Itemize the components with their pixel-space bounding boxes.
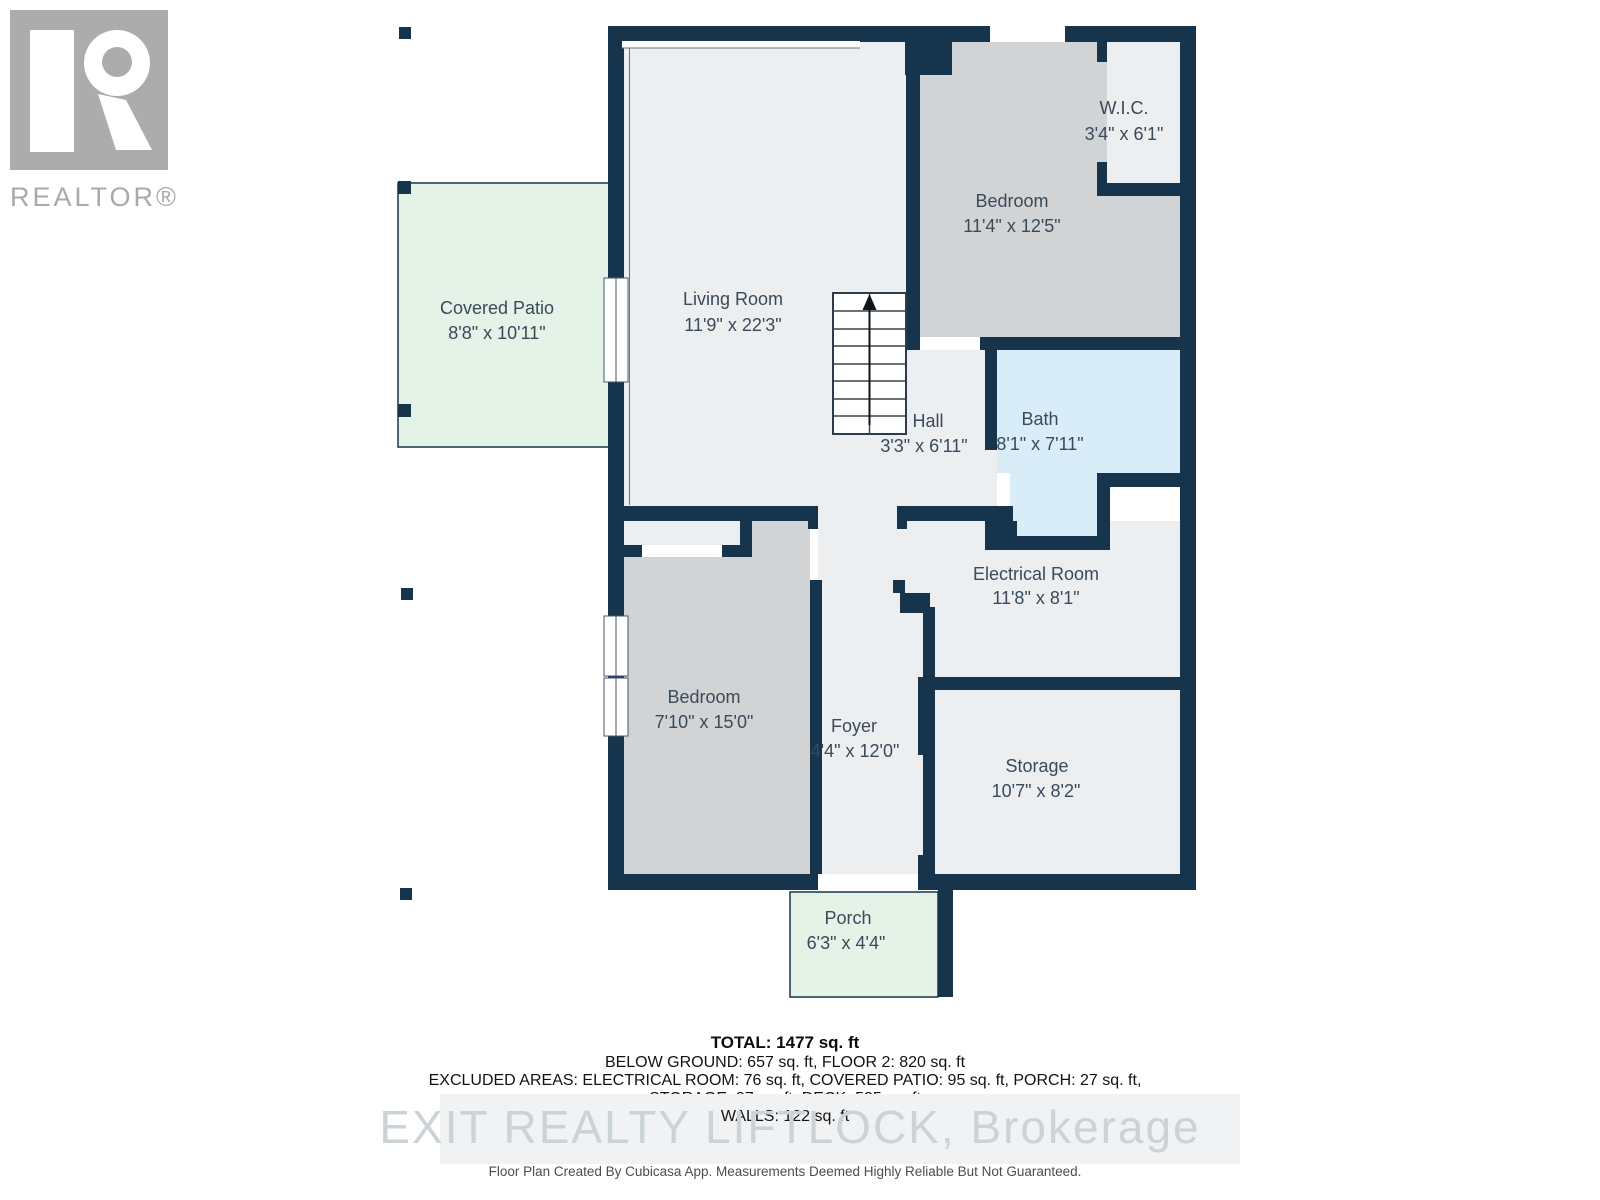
room-foyer (818, 521, 923, 874)
wall-segment (918, 690, 930, 755)
room-dims: 8'1" x 7'11" (996, 434, 1083, 454)
wall-segment (608, 26, 990, 42)
floorplan-page: REALTOR® (0, 0, 1600, 1200)
wall-segment (608, 874, 818, 890)
room-dims: 11'8" x 8'1" (992, 588, 1079, 608)
room-bath-nook (1010, 473, 1097, 536)
room-dims: 6'3" x 4'4" (807, 933, 886, 953)
room-dims: 3'4" x 6'1" (1085, 124, 1164, 144)
realtor-logo-text: REALTOR® (10, 182, 179, 212)
bedroom-closet (622, 521, 740, 545)
deck-post-icon (400, 888, 412, 900)
wall-segment (608, 26, 624, 874)
room-label: W.I.C. (1100, 98, 1149, 118)
patio-post-icon (398, 404, 411, 417)
floorplan-canvas: REALTOR® (0, 0, 1600, 1200)
wall-segment (980, 337, 1180, 350)
deck-posts (399, 27, 413, 900)
summary-line: BELOW GROUND: 657 sq. ft, FLOOR 2: 820 s… (605, 1054, 966, 1071)
room-label: Electrical Room (973, 564, 1099, 584)
room-label: Porch (824, 908, 871, 928)
wall-segment (918, 855, 930, 890)
wall-segment (918, 677, 1196, 690)
wall-segment (608, 506, 818, 521)
wall-segment (618, 545, 642, 557)
hall-foyer-opening (818, 506, 897, 521)
wall-segment (1097, 162, 1107, 183)
staircase (833, 293, 906, 434)
brokerage-watermark: EXIT REALTY LIFTLOCK, Brokerage (379, 1101, 1200, 1153)
room-dims: 7'10" x 15'0" (655, 712, 754, 732)
room-label: Bedroom (975, 191, 1048, 211)
deck-post-icon (399, 27, 411, 39)
wall-segment (932, 874, 1196, 890)
realtor-logo-r-bar (30, 30, 74, 152)
wall-segment (897, 521, 907, 529)
room-dims: 3'3" x 6'11" (880, 436, 967, 456)
wall-segment (1000, 521, 1017, 547)
wall-segment (1180, 26, 1196, 890)
wall-segment (1097, 183, 1196, 196)
wall-segment (985, 350, 997, 450)
room-label: Bath (1021, 409, 1058, 429)
room-dims: 8'8" x 10'11" (448, 323, 545, 343)
closet-opening (642, 545, 722, 557)
window-band (622, 41, 860, 48)
wall-segment (893, 580, 905, 593)
room-label: Bedroom (667, 687, 740, 707)
wall-segment (722, 545, 740, 557)
wall-segment (1065, 26, 1196, 42)
room-floors (622, 42, 1180, 874)
wall-segment (1097, 473, 1110, 550)
room-label: Living Room (683, 289, 783, 309)
room-dims: 10'7" x 8'2" (992, 781, 1081, 801)
realtor-logo: REALTOR® (10, 10, 179, 212)
wall-segment (938, 886, 953, 997)
deck-post-icon (401, 588, 413, 600)
wall-segment (810, 580, 822, 874)
room-dims: 4'4" x 12'0" (811, 741, 900, 761)
wall-segment (740, 521, 752, 557)
wall-segment (808, 521, 818, 529)
summary-line: EXCLUDED AREAS: ELECTRICAL ROOM: 76 sq. … (429, 1072, 1142, 1089)
wall-segment (1097, 42, 1107, 62)
room-label: Storage (1005, 756, 1068, 776)
patio-post-icon (398, 181, 411, 194)
room-label: Covered Patio (440, 298, 554, 318)
wall-segment (897, 506, 1013, 521)
room-dims: 11'9" x 22'3" (684, 315, 781, 335)
disclaimer-text: Floor Plan Created By Cubicasa App. Meas… (489, 1164, 1082, 1179)
room-label: Foyer (831, 716, 877, 736)
room-dims: 11'4" x 12'5" (963, 216, 1060, 236)
realtor-logo-r-counter (102, 47, 132, 77)
room-living-room (622, 42, 906, 506)
room-label: Hall (912, 411, 943, 431)
wall-segment (1110, 473, 1196, 487)
summary-total: TOTAL: 1477 sq. ft (711, 1033, 860, 1052)
wall-segment (905, 42, 952, 75)
